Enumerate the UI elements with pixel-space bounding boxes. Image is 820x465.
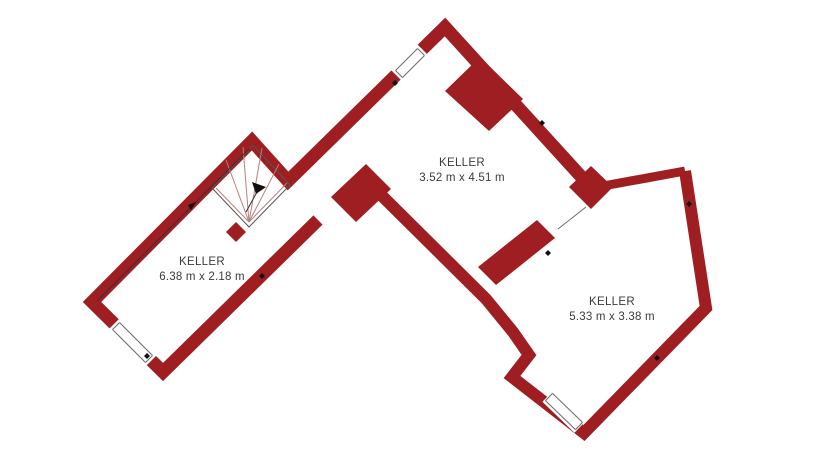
interior-thick-block <box>331 164 391 222</box>
wall-right-room-top <box>603 171 685 186</box>
floor-plan-page: KELLER 3.52 m x 4.51 m KELLER 6.38 m x 2… <box>0 0 820 465</box>
room-name: KELLER <box>179 256 225 268</box>
room-dimensions: 5.33 m x 3.38 m <box>569 311 654 323</box>
wall-right-room <box>367 171 706 433</box>
walls <box>92 27 706 433</box>
floor-plan-canvas: KELLER 3.52 m x 4.51 m KELLER 6.38 m x 2… <box>0 0 820 465</box>
column-block <box>226 222 246 242</box>
chimney-block <box>445 57 523 131</box>
window-symbol <box>396 49 425 78</box>
room-label-middle: KELLER 3.52 m x 4.51 m <box>419 157 504 184</box>
room-label-left: KELLER 6.38 m x 2.18 m <box>159 256 244 283</box>
door-opening-line <box>558 207 586 229</box>
room-dimensions: 3.52 m x 4.51 m <box>419 172 504 184</box>
room-name: KELLER <box>439 157 485 169</box>
pier-block <box>478 220 555 285</box>
room-dimensions: 6.38 m x 2.18 m <box>159 271 244 283</box>
room-name: KELLER <box>589 296 635 308</box>
room-label-right: KELLER 5.33 m x 3.38 m <box>569 296 654 323</box>
stair-outline <box>212 145 290 227</box>
